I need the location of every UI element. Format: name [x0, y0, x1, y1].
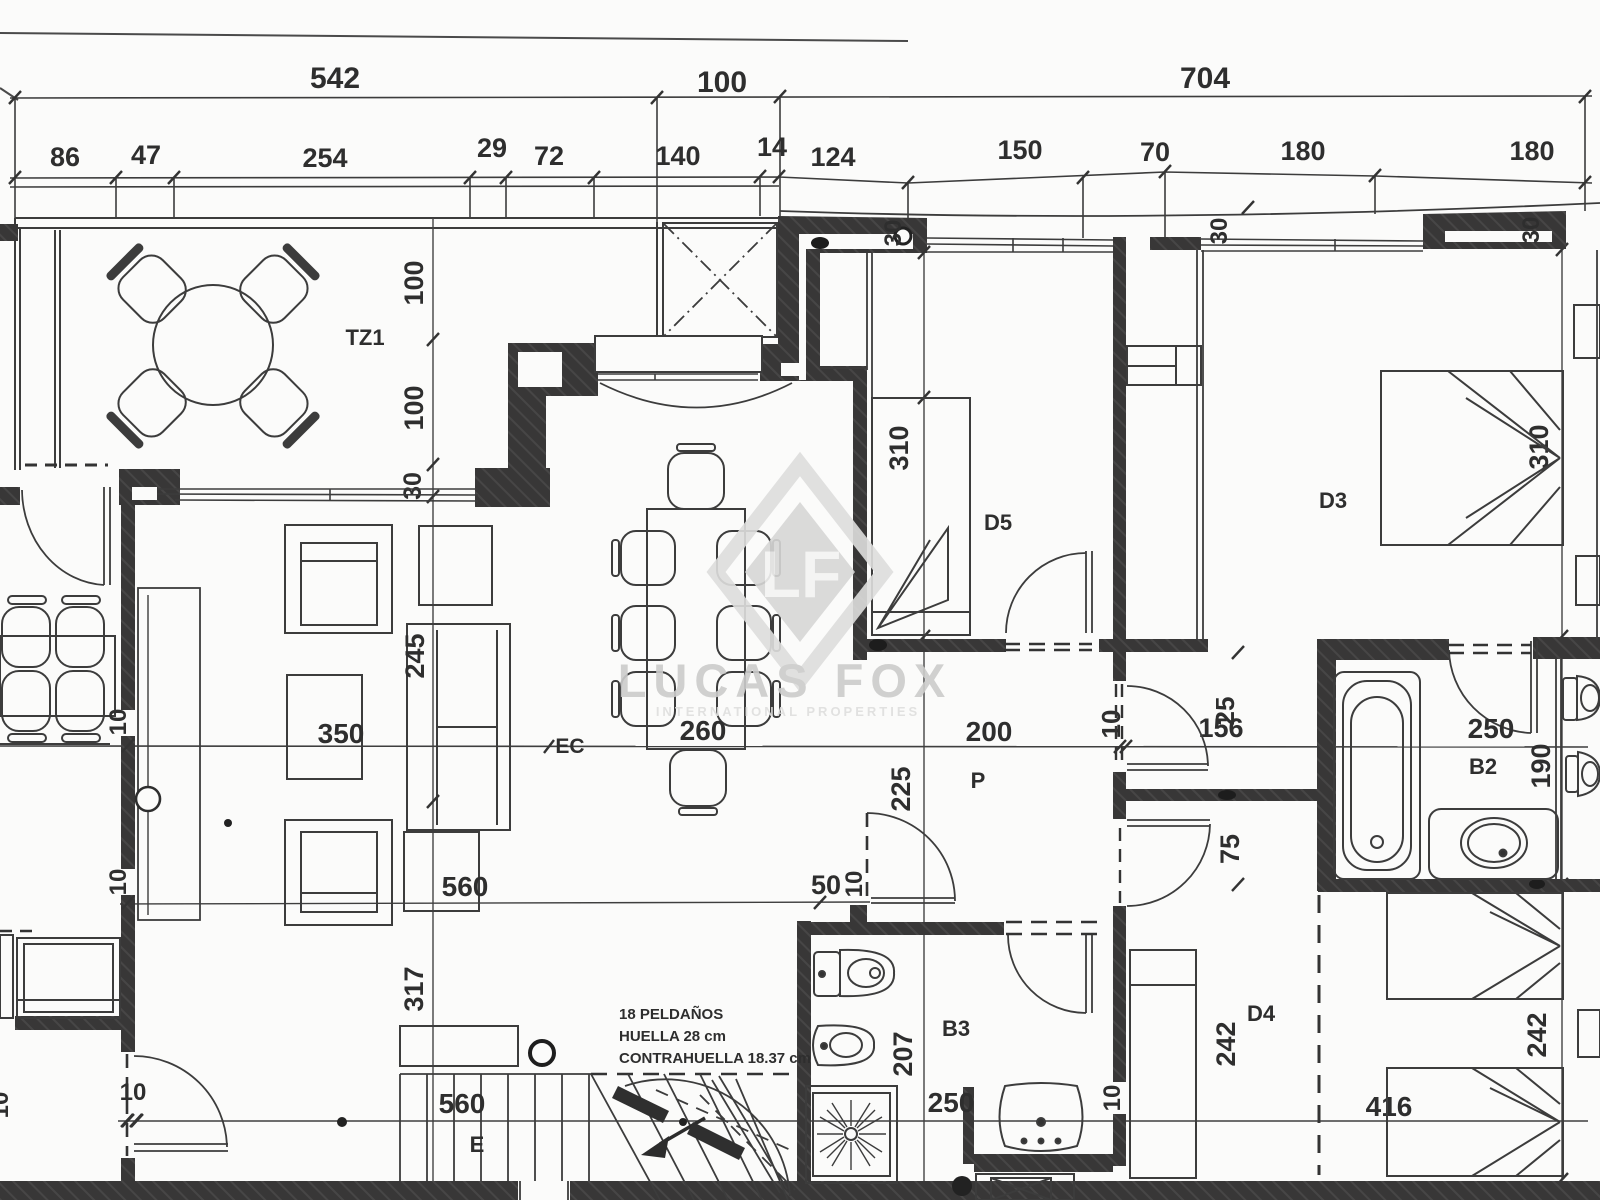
svg-text:E: E [470, 1132, 485, 1157]
svg-text:P: P [971, 768, 986, 793]
svg-text:225: 225 [886, 766, 916, 811]
svg-text:47: 47 [131, 140, 161, 170]
svg-text:HUELLA 28 cm: HUELLA 28 cm [619, 1028, 726, 1045]
svg-text:416: 416 [1366, 1091, 1413, 1122]
svg-text:310: 310 [884, 425, 914, 470]
svg-text:542: 542 [310, 62, 360, 95]
svg-text:190: 190 [1526, 743, 1556, 788]
svg-text:18 PELDAÑOS: 18 PELDAÑOS [619, 1005, 723, 1023]
svg-text:10: 10 [105, 709, 132, 736]
svg-text:242: 242 [1522, 1012, 1552, 1057]
svg-text:250: 250 [1468, 713, 1515, 744]
svg-text:245: 245 [400, 633, 430, 678]
svg-text:14: 14 [757, 132, 787, 162]
svg-text:100: 100 [697, 66, 747, 99]
svg-text:30: 30 [1518, 217, 1545, 244]
svg-text:TZ1: TZ1 [345, 325, 384, 350]
svg-text:124: 124 [810, 142, 855, 172]
svg-text:30: 30 [1206, 218, 1233, 245]
svg-text:B2: B2 [1469, 754, 1497, 779]
svg-text:560: 560 [439, 1088, 486, 1119]
svg-text:180: 180 [1280, 136, 1325, 166]
svg-text:29: 29 [477, 133, 507, 163]
svg-text:310: 310 [1524, 424, 1554, 469]
svg-text:EC: EC [555, 735, 584, 758]
svg-text:200: 200 [966, 716, 1013, 747]
svg-text:350: 350 [318, 718, 365, 749]
svg-text:INTERNATIONAL PROPERTIES: INTERNATIONAL PROPERTIES [656, 704, 920, 719]
svg-text:70: 70 [1140, 137, 1170, 167]
svg-text:317: 317 [399, 966, 429, 1011]
svg-text:75: 75 [1215, 834, 1245, 864]
svg-text:254: 254 [302, 143, 347, 173]
svg-text:30: 30 [399, 472, 427, 500]
svg-text:704: 704 [1180, 62, 1230, 95]
svg-text:207: 207 [888, 1031, 918, 1076]
svg-text:100: 100 [399, 260, 429, 305]
svg-text:CONTRAHUELLA 18.37 cm: CONTRAHUELLA 18.37 cm [619, 1050, 811, 1067]
svg-text:242: 242 [1211, 1021, 1241, 1066]
svg-text:260: 260 [680, 715, 727, 746]
svg-text:150: 150 [997, 135, 1042, 165]
svg-text:25: 25 [1210, 697, 1240, 726]
svg-text:LUCAS FOX: LUCAS FOX [618, 654, 953, 707]
svg-text:560: 560 [442, 871, 489, 902]
svg-text:D4: D4 [1247, 1001, 1276, 1026]
svg-text:100: 100 [399, 385, 429, 430]
svg-text:250: 250 [928, 1087, 975, 1118]
svg-text:10: 10 [105, 869, 132, 896]
svg-text:LF: LF [761, 537, 842, 611]
svg-text:B3: B3 [942, 1016, 970, 1041]
svg-text:D5: D5 [984, 510, 1012, 535]
svg-text:180: 180 [1509, 136, 1554, 166]
svg-text:72: 72 [534, 141, 564, 171]
svg-text:30: 30 [880, 220, 907, 247]
svg-text:10: 10 [1099, 1085, 1126, 1112]
svg-text:50: 50 [811, 870, 841, 900]
svg-text:86: 86 [50, 142, 80, 172]
svg-text:10: 10 [120, 1079, 147, 1106]
svg-text:140: 140 [655, 141, 700, 171]
svg-text:10: 10 [0, 1092, 14, 1119]
svg-text:10: 10 [841, 871, 868, 898]
svg-text:D3: D3 [1319, 488, 1347, 513]
